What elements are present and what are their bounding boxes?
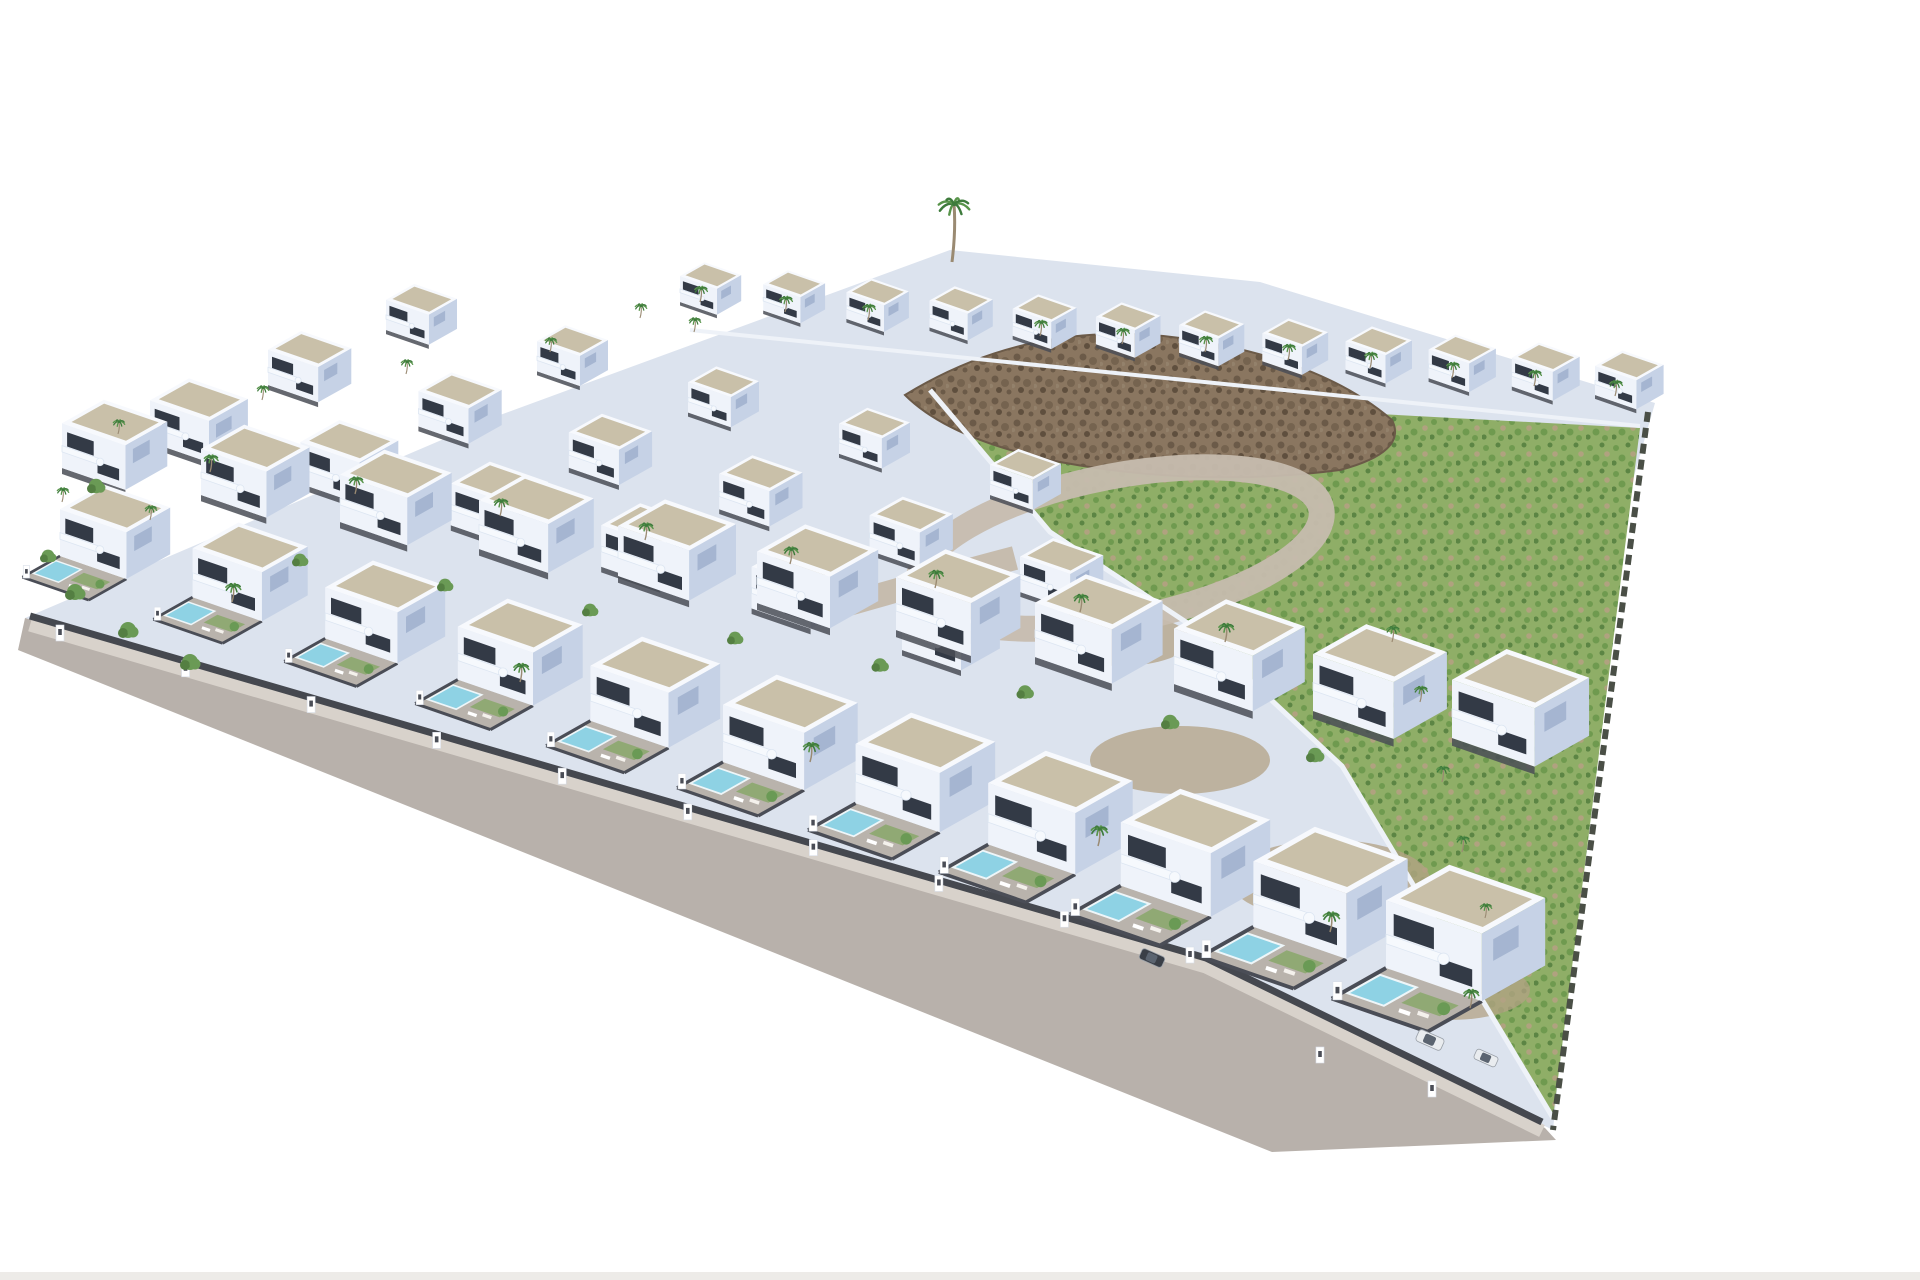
tree xyxy=(40,550,56,563)
palm-crown-center xyxy=(1462,838,1464,840)
palm-crown-center xyxy=(550,339,552,341)
palm-tree xyxy=(635,304,646,318)
tree-canopy xyxy=(727,636,735,644)
balcony-curve xyxy=(746,501,752,507)
balcony-curve xyxy=(1357,698,1367,708)
palm-crown-center xyxy=(1470,991,1473,994)
balcony-curve xyxy=(950,321,955,326)
tree-canopy xyxy=(437,583,445,591)
gate-lamp xyxy=(1188,951,1192,957)
balcony-curve xyxy=(711,406,716,411)
palm-crown-center xyxy=(1485,905,1487,907)
tree-canopy xyxy=(1017,690,1026,699)
balcony-curve xyxy=(1169,872,1180,883)
gate-lamp xyxy=(1336,987,1340,994)
balcony-curve xyxy=(1076,645,1085,654)
gate-lamp xyxy=(309,701,313,707)
gate-lamp xyxy=(680,778,683,784)
tree-canopy xyxy=(300,557,309,566)
gate-lamp xyxy=(942,862,946,868)
balcony-curve xyxy=(1033,330,1038,335)
palm-crown-center xyxy=(1122,330,1124,332)
balcony-curve xyxy=(796,592,805,601)
villa xyxy=(386,284,457,349)
gate-lamp xyxy=(1073,903,1077,909)
palm-crown-center xyxy=(700,288,702,290)
balcony-curve xyxy=(1200,347,1205,352)
balcony-curve xyxy=(862,447,867,452)
palm-crown-center xyxy=(1534,372,1536,374)
tree-canopy xyxy=(872,663,881,672)
tree-canopy xyxy=(118,628,128,638)
tree-canopy xyxy=(1161,720,1170,729)
balcony-curve xyxy=(236,485,244,493)
tree-canopy xyxy=(582,608,590,616)
villa xyxy=(680,262,741,318)
palm-crown-center xyxy=(406,361,408,363)
palm-crown-center xyxy=(1098,828,1101,831)
balcony-curve xyxy=(633,709,642,718)
tree-canopy xyxy=(1025,689,1034,698)
palm-crown-center xyxy=(500,500,503,503)
aerial-render-svg xyxy=(0,0,1920,1280)
garden-shrub xyxy=(1437,1002,1450,1015)
tree-canopy xyxy=(190,659,201,670)
balcony-curve xyxy=(96,458,104,466)
gate-lamp xyxy=(812,844,816,850)
palm-crown-center xyxy=(1452,364,1454,366)
balcony-curve xyxy=(1035,831,1045,841)
palm-crown-center xyxy=(952,202,956,206)
gate-lamp xyxy=(435,736,439,742)
tree-canopy xyxy=(87,484,96,493)
palm-crown-center xyxy=(1205,338,1207,340)
palm-crown-center xyxy=(785,298,787,300)
tree-canopy xyxy=(40,554,48,562)
palm-crown-center xyxy=(520,665,523,668)
palm-crown-center xyxy=(1080,596,1083,599)
palm-tree xyxy=(401,360,412,374)
tree-canopy xyxy=(128,627,139,638)
bottom-edge-strip xyxy=(0,1272,1920,1280)
gate-lamp xyxy=(937,879,941,885)
palm-tree xyxy=(57,488,68,502)
gate-lamp xyxy=(549,736,552,741)
balcony-curve xyxy=(1617,389,1622,394)
gate-lamp xyxy=(58,629,62,635)
balcony-curve xyxy=(596,460,602,466)
garden-shrub xyxy=(1303,960,1316,973)
balcony-curve xyxy=(1304,912,1315,923)
palm-trunk xyxy=(952,204,955,262)
palm-crown-center xyxy=(355,478,358,481)
gate-lamp xyxy=(287,653,290,658)
tree-canopy xyxy=(1315,752,1325,762)
aerial-site-render xyxy=(0,0,1920,1280)
palm-crown-center xyxy=(150,507,152,509)
palm-crown-center xyxy=(645,524,648,527)
balcony-curve xyxy=(656,565,665,574)
garden-shrub xyxy=(1035,875,1047,887)
palm-crown-center xyxy=(790,548,793,551)
palm-crown-center xyxy=(1615,382,1617,384)
palm-crown-center xyxy=(262,387,264,389)
tree-canopy xyxy=(1170,719,1180,729)
balcony-curve xyxy=(901,790,911,800)
balcony-curve xyxy=(498,668,507,677)
balcony-curve xyxy=(560,365,565,370)
tree-canopy xyxy=(735,635,744,644)
balcony-curve xyxy=(1217,672,1226,681)
balcony-curve xyxy=(1013,488,1018,493)
gate-lamp xyxy=(811,820,814,826)
tree-canopy xyxy=(180,660,190,670)
tree-canopy xyxy=(880,662,889,671)
tree-canopy xyxy=(48,553,57,562)
balcony-curve xyxy=(1117,338,1122,343)
gate-lamp xyxy=(560,772,564,778)
palm-crown-center xyxy=(232,585,235,588)
balcony-curve xyxy=(936,618,945,627)
palm-crown-center xyxy=(1420,688,1422,690)
garden-shrub xyxy=(1169,918,1181,930)
balcony-curve xyxy=(376,512,384,520)
gate-lamp xyxy=(156,611,159,616)
balcony-curve xyxy=(445,419,451,425)
gate-lamp xyxy=(1204,945,1208,951)
layer-edge xyxy=(0,1272,1920,1280)
palm-crown-center xyxy=(118,421,120,423)
palm-crown-center xyxy=(1288,346,1290,348)
palm-crown-center xyxy=(694,319,696,321)
palm-crown-center xyxy=(935,572,938,575)
palm-crown-center xyxy=(210,456,213,459)
balcony-curve xyxy=(1047,584,1053,590)
garden-shrub xyxy=(95,580,104,589)
palm-crown-center xyxy=(1442,768,1444,770)
tree-canopy xyxy=(292,558,300,566)
palm-crown-center xyxy=(1040,322,1042,324)
garden-shrub xyxy=(498,706,508,716)
balcony-curve xyxy=(295,377,301,383)
balcony-curve xyxy=(409,323,414,328)
palm-crown-center xyxy=(810,744,813,747)
tree-canopy xyxy=(75,589,86,600)
villa xyxy=(268,331,351,407)
palm-crown-center xyxy=(640,305,642,307)
balcony-curve xyxy=(516,538,524,546)
tree-canopy xyxy=(445,582,454,591)
gate-lamp xyxy=(1063,915,1067,921)
palm-crown-center xyxy=(1330,914,1333,917)
gate-lamp xyxy=(686,808,690,814)
balcony-curve xyxy=(96,546,104,554)
garden-shrub xyxy=(900,833,911,844)
garden-shrub xyxy=(364,664,374,674)
palm-crown-center xyxy=(62,489,64,491)
garden-shrub xyxy=(230,622,239,631)
tree-canopy xyxy=(590,607,599,616)
tree-canopy xyxy=(96,483,106,493)
garden-shrub xyxy=(632,749,643,760)
balcony-curve xyxy=(1497,725,1507,735)
palm-crown-center xyxy=(1370,354,1372,356)
gate-lamp xyxy=(1318,1051,1322,1057)
balcony-curve xyxy=(1438,953,1449,964)
balcony-curve xyxy=(364,627,373,636)
balcony-curve xyxy=(897,543,903,549)
balcony-curve xyxy=(332,474,339,481)
palm-crown-center xyxy=(1392,628,1394,630)
palm-tree xyxy=(257,386,268,400)
gate-lamp xyxy=(25,569,28,574)
gate-lamp xyxy=(1430,1085,1434,1091)
balcony-curve xyxy=(182,433,189,440)
tree-canopy xyxy=(65,590,75,600)
garden-shrub xyxy=(766,791,777,802)
palm-crown-center xyxy=(1225,625,1228,628)
tree-canopy xyxy=(1306,753,1315,762)
balcony-curve xyxy=(767,749,777,759)
palm-crown-center xyxy=(868,306,870,308)
gate-lamp xyxy=(418,694,421,699)
